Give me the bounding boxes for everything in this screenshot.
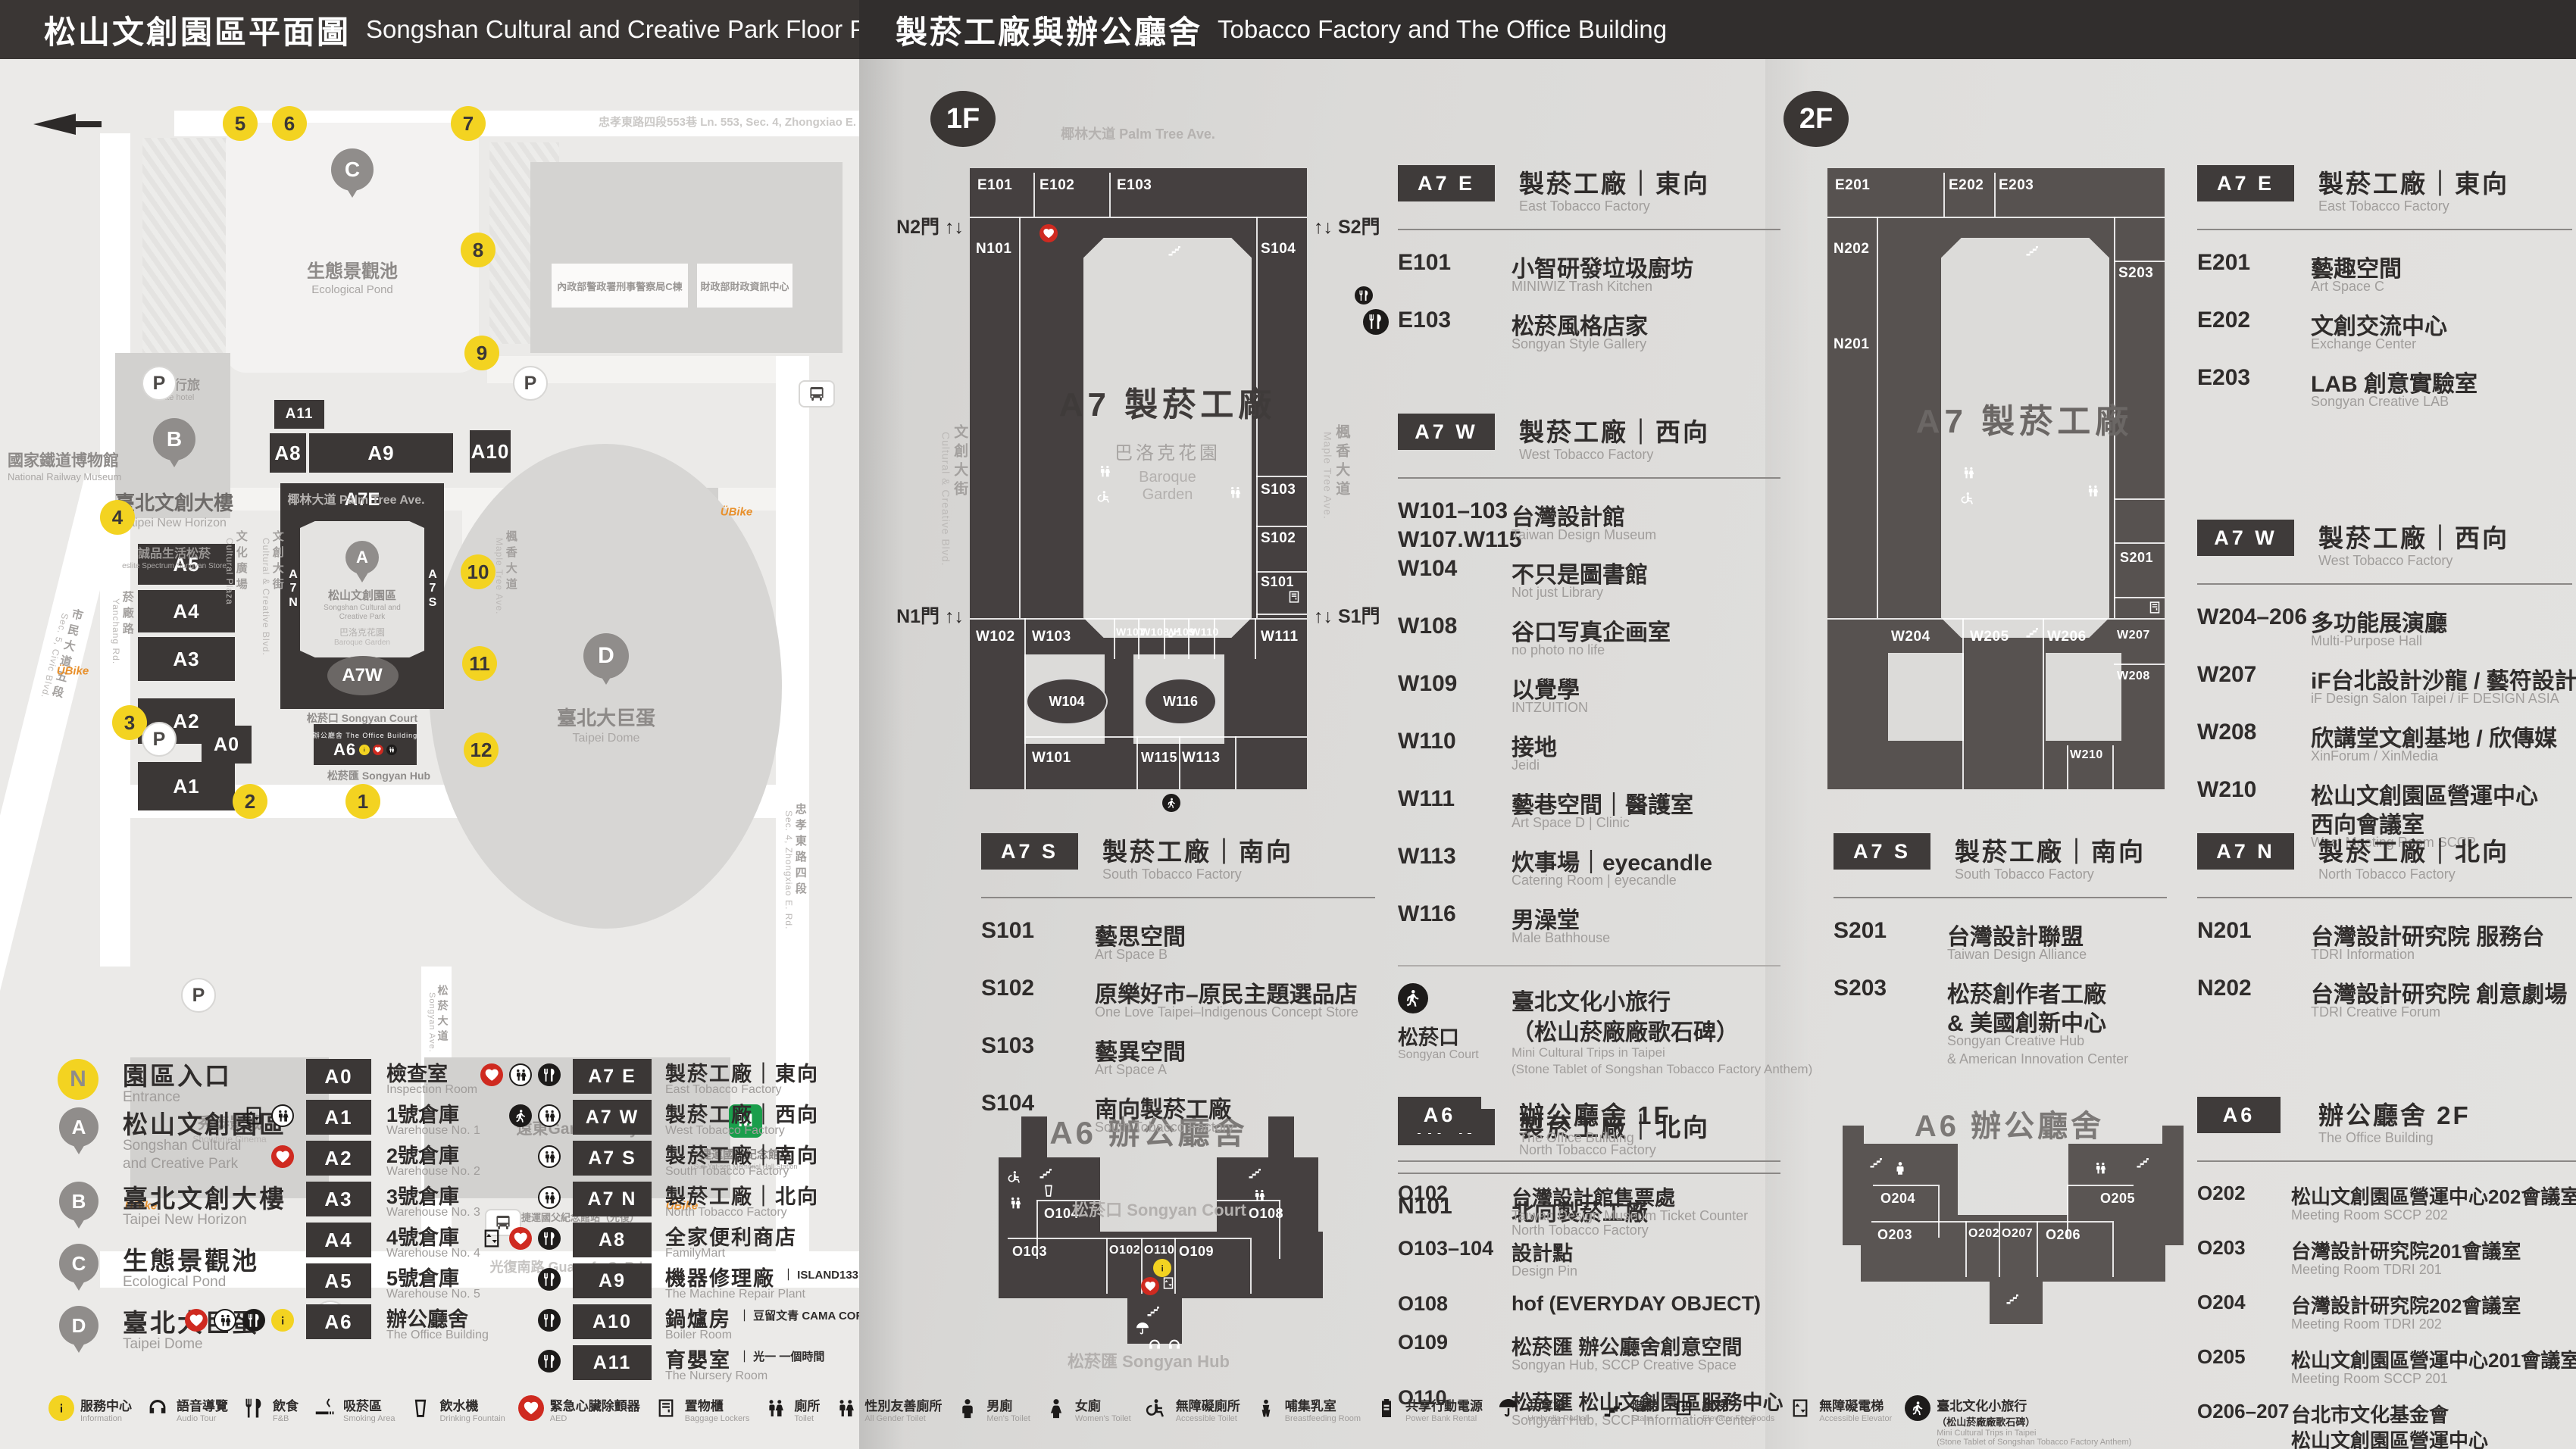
plan-gate-N2: N2門 ↑↓ [896, 212, 964, 239]
stairs-icon-glyph [1146, 1303, 1161, 1318]
area-label-zh: 內政部警政署刑事警察局C棟 [557, 279, 682, 293]
facility-en: Mini Cultural Trips in Taipei [1937, 1429, 2131, 1438]
plan-room-O110: O110 [1144, 1244, 1174, 1257]
legend-marker-A: A [59, 1107, 98, 1147]
section-title-en: West Tobacco Factory [2318, 553, 2453, 569]
elevb-icon [1787, 1395, 1813, 1421]
facility-zh: 共享傘 [1527, 1395, 1587, 1414]
stairs-icon [1600, 1395, 1626, 1421]
facility-zh: 臺北文化小旅行 [1937, 1395, 2131, 1414]
map-building-A0: A0 [202, 726, 252, 764]
map-entrance-12: 12 [464, 732, 499, 767]
plan-room-O205: O205 [2100, 1191, 2135, 1207]
facility-zh: 哺集乳室 [1285, 1395, 1361, 1414]
legend-en-A2: Warehouse No. 2 [386, 1165, 480, 1179]
fork-icon-glyph [542, 1354, 557, 1369]
listing-code-W113: W113 [1398, 844, 1456, 870]
park-map: 內政部警政署刑事警察局C棟財政部財政資訊中心臺北洲際酒店巨蛋國際中心秀泰影城Sh… [0, 59, 859, 1449]
icon-stairs [1167, 242, 1182, 258]
map-text-en: eslite Spectrum Songyan Store [122, 562, 227, 572]
icon-toiletc [538, 1145, 561, 1168]
map-text-生態景觀池: 生態景觀池Ecological Pond [307, 261, 398, 298]
plan-a6f2-line-4 [1965, 1221, 1967, 1277]
legend-badge-A7-E: A7 E [573, 1059, 652, 1094]
listing-code-W104: W104 [1398, 556, 1457, 582]
listing-name-zh2-O206–207: 松山文創園區營運中心 [2291, 1426, 2488, 1449]
court-label-en: Songyan Court [1398, 1048, 1479, 1062]
ubike-station-1: ÜBike [721, 506, 753, 519]
facility-en: Men's Toilet [986, 1414, 1030, 1423]
plan-street-label: 椰林大道 Palm Tree Ave. [1061, 126, 1215, 143]
facility-text: 飲水機Drinking Fountain [439, 1395, 505, 1423]
goods-icon-glyph [1672, 1397, 1695, 1419]
court-zh: 臺北文化小旅行 [1512, 983, 1671, 1016]
plan-text-line: 松菸口 Songyan Court [1072, 1200, 1246, 1221]
plan-f2-line-2 [1994, 173, 1996, 217]
toilet-icon-glyph [542, 1190, 557, 1205]
section-divider [2197, 583, 2572, 585]
listing-name-en-W116: Male Bathhouse [1512, 930, 1610, 946]
icon-tripc [1162, 794, 1180, 812]
facility-text: 語音導覽Audio Tour [177, 1395, 228, 1423]
toilet-icon-glyph [1097, 464, 1112, 479]
trip-icon-glyph [1402, 988, 1423, 1008]
plan-room-W104: W104 [1026, 678, 1108, 725]
cup-icon-glyph [409, 1397, 432, 1419]
facility-zh: 階梯 [1632, 1395, 1658, 1414]
facility-zh: 廁所 [794, 1395, 820, 1414]
facility-en: AED [550, 1414, 640, 1423]
map-text-臺北大巨蛋: 臺北大巨蛋Taipei Dome [557, 706, 655, 746]
info-icon-glyph [1156, 1262, 1168, 1274]
listing-name-en-S101: Art Space B [1095, 947, 1168, 963]
toilet-icon-glyph [2093, 1160, 2108, 1176]
plan-room-O109: O109 [1179, 1244, 1214, 1260]
plan-room-O108: O108 [1249, 1206, 1283, 1222]
battery-icon-glyph [1375, 1397, 1398, 1419]
aed-icon-glyph [374, 746, 382, 754]
map-text-line: 椰林大道 Palm Tree Ave. [287, 493, 424, 508]
section-divider [2197, 897, 2572, 898]
section-badge-A7-E: A7 E [1398, 165, 1495, 201]
plan-f2-line-5 [2114, 261, 2165, 262]
fork-icon [241, 1395, 267, 1421]
section-badge-A6: A6 [1398, 1097, 1481, 1133]
facility-accessible-elevator: 無障礙電梯Accessible Elevator [1787, 1395, 1892, 1423]
plan-room-O204: O204 [1880, 1191, 1915, 1207]
plan-room-S102: S102 [1261, 530, 1296, 547]
facility-text: 緊急心臟除顫器AED [550, 1395, 640, 1423]
section-title-en: The Office Building [2318, 1130, 2434, 1146]
listing-code-O206–207: O206–207 [2197, 1400, 2289, 1423]
map-area-fia-office: 財政部財政資訊中心 [697, 264, 792, 308]
plan-a6f1-mass-4 [1021, 1116, 1047, 1159]
icon-forkc [538, 1268, 561, 1291]
legend-badge-A7-S: A7 S [573, 1141, 652, 1176]
listing-code-S101: S101 [981, 918, 1034, 944]
icon-aed [1039, 224, 1058, 242]
icon-wheel [1097, 489, 1112, 504]
toilet-icon-glyph [513, 1067, 528, 1082]
aed-icon-glyph [1043, 227, 1055, 239]
woman-icon-glyph [1045, 1397, 1068, 1419]
listing-name-en-W110: Jeidi [1512, 757, 1540, 773]
toilet-icon-glyph [1252, 1188, 1267, 1203]
road-label-zh: 文化廣場 [234, 530, 247, 605]
trip-icon-glyph [513, 1108, 528, 1123]
icon-aed [480, 1063, 503, 1086]
toilet-icon [762, 1395, 788, 1421]
map-text-椰林大道: 椰林大道 Palm Tree Ave. [287, 493, 424, 508]
listing-code-W204–206: W204–206 [2197, 604, 2307, 630]
info-icon-glyph [275, 1313, 290, 1328]
aedg-icon [518, 1395, 544, 1421]
facility-zh: 男廁 [986, 1395, 1030, 1414]
listing-name-en-S201: Taiwan Design Alliance [1947, 947, 2087, 963]
icon-aed [271, 1145, 294, 1168]
listing-code-W110: W110 [1398, 729, 1456, 754]
facility-en: Drinking Fountain [439, 1414, 505, 1423]
icon-toilet [2093, 1160, 2108, 1176]
facility-zh: 緊急心臟除顫器 [550, 1395, 640, 1414]
facility-text: 廁所Toilet [794, 1395, 820, 1423]
plan-f1-line-15 [1214, 618, 1215, 659]
legend-badge-A9: A9 [573, 1263, 652, 1298]
listing-name-zh-O202: 松山文創園區營運中心202會議室 [2291, 1182, 2576, 1210]
umb-icon-glyph [1135, 1321, 1150, 1336]
plan-room-S104: S104 [1261, 241, 1296, 258]
plan-room-W110: W110 [1190, 626, 1219, 638]
toilet-icon-glyph [275, 1108, 290, 1123]
plan-room-E201: E201 [1835, 177, 1870, 194]
plan-f2-line-8 [2114, 597, 2165, 598]
icon-forkc [538, 1227, 561, 1250]
plan-room-S101: S101 [1261, 574, 1294, 590]
locker-icon-glyph [1286, 589, 1302, 604]
listing-name-en-W208: XinForum / XinMedia [2311, 748, 2438, 764]
road-label-zh: 菸廠路 [120, 591, 133, 664]
listing-name-en-O102: Taiwan Design Museum Ticket Counter [1512, 1208, 1748, 1224]
legend-zh-B: 臺北文創大樓 [123, 1179, 286, 1215]
map-pin-D: D [583, 633, 629, 679]
facility-mini-cultural-trips-in-taipei: 臺北文化小旅行（松山菸廠廠歌石碑）Mini Cultural Trips in … [1905, 1395, 2131, 1447]
legend-en-A7 W: West Tobacco Factory [665, 1124, 785, 1138]
plan-center-title: A7 製菸工廠 [1059, 377, 1276, 426]
toilet-icon-glyph [1008, 1195, 1023, 1210]
listing-name-en-S102: One Love Taipei–Indigenous Concept Store [1095, 1004, 1358, 1020]
facility-zh: 飲食 [273, 1395, 299, 1414]
section-divider [1398, 1160, 1780, 1162]
facility-power-bank-rental: 共享行動電源Power Bank Rental [1374, 1395, 1483, 1423]
floor-badge-2F: 2F [1784, 91, 1849, 147]
icon-info [359, 745, 370, 755]
icon-head [1167, 1338, 1182, 1353]
facility-en2: (Stone Tablet of Songshan Tobacco Factor… [1937, 1438, 2131, 1447]
plan-f1-line-17 [1024, 736, 1307, 738]
plan-room-E203: E203 [1999, 177, 2034, 194]
legend-badge-A7-W: A7 W [573, 1100, 652, 1135]
listing-code-E202: E202 [2197, 308, 2250, 333]
bus-stop-icon-0 [799, 380, 835, 408]
plan-room-O206: O206 [2046, 1227, 2080, 1243]
map-entrance-1: 1 [345, 784, 380, 819]
listing-name-en2-S203: & American Innovation Center [1947, 1051, 2128, 1067]
plan-f2-line-11 [2043, 618, 2044, 789]
listing-code-N202: N202 [2197, 976, 2252, 1001]
plan-room-E103: E103 [1117, 177, 1152, 194]
listing-code-O202: O202 [2197, 1182, 2246, 1205]
plan-side-文創大街: 文創大街Cultural & Creative Blvd. [939, 424, 967, 567]
legend-en-A7 E: East Tobacco Factory [665, 1083, 782, 1097]
road-label-en: Cultural Plaza [224, 538, 234, 605]
map-pin-B: B [153, 418, 195, 461]
map-building-A11: A11 [274, 400, 324, 429]
icon-elev [1161, 1276, 1176, 1291]
legend-en-A11: The Nursery Room [665, 1369, 767, 1383]
listing-name-zh-O102: 台灣設計館售票處 [1512, 1182, 1675, 1211]
listing-code-W116: W116 [1398, 901, 1456, 927]
facility-en: Information [80, 1414, 132, 1423]
trip-icon-glyph [1909, 1400, 1926, 1416]
legend-en2-A: and Creative Park [123, 1156, 238, 1173]
legend-en-A5: Warehouse No. 5 [386, 1288, 480, 1301]
stairs-icon-glyph [2024, 624, 2040, 639]
icon-stairs [1868, 1154, 1884, 1170]
facility-smoking-area: 吸菸區Smoking Area [311, 1395, 395, 1423]
listing-code-E101: E101 [1398, 250, 1451, 276]
legend-badge-A3: A3 [306, 1182, 371, 1216]
plan-text-松菸匯: 松菸匯 Songyan Hub [1068, 1351, 1230, 1372]
facility-text: 吸菸區Smoking Area [343, 1395, 395, 1423]
section-title-zh: 製菸工廠｜北向 [2318, 832, 2509, 868]
legend-marker-N: N [58, 1059, 98, 1100]
plan-room-W115: W115 [1141, 750, 1177, 766]
listing-name-en-W113: Catering Room | eyecandle [1512, 873, 1677, 888]
listing-name-en-S104: South Tobacco Factory [1095, 1120, 1234, 1135]
plan-room-E101: E101 [977, 177, 1012, 194]
legend-en-A9: The Machine Repair Plant [665, 1288, 805, 1301]
icon-elev [480, 1227, 503, 1250]
toilet-icon-glyph [388, 746, 395, 754]
map-text-en: Taipei Dome [557, 731, 655, 746]
plan-f2-court-2 [2046, 653, 2121, 741]
icon-wheel [1961, 491, 1976, 506]
listing-name-zh-O109: 松菸匯 辦公廳舍創意空間 [1512, 1331, 1743, 1360]
a7-garden-en: Baroque Garden [277, 639, 447, 648]
facility-text: 共享傘Umbrella Rental [1527, 1395, 1587, 1423]
icon-elev [242, 1104, 265, 1127]
road-label-en: Songyan Ave. [427, 992, 436, 1053]
plan-room-O102: O102 [1109, 1244, 1140, 1257]
map-road-label-忠孝東路四段: 忠孝東路四段Sec. 4, Zhongxiao E. Rd. [783, 803, 806, 929]
section-badge-A7-W: A7 W [1398, 414, 1495, 450]
plan-f2-line-3 [1877, 217, 1878, 618]
listing-name-en-E203: Songyan Creative LAB [2311, 394, 2449, 410]
facility-all-gender-toilet: 性別友善廁所All Gender Toilet [833, 1395, 942, 1423]
facility-en: Breastfeeding Room [1285, 1414, 1361, 1423]
facility-baggage-lockers: 置物櫃Baggage Lockers [653, 1395, 750, 1423]
plan-room-W113: W113 [1182, 750, 1221, 767]
plan-f1-line-16 [1255, 618, 1256, 659]
facility-text: 共享行動電源Power Bank Rental [1405, 1395, 1483, 1423]
legend-zh-N: 園區入口 [123, 1056, 232, 1092]
side-zh: 文創大街 [951, 424, 967, 567]
map-entrance-6: 6 [272, 106, 307, 141]
aed-icon-glyph [189, 1313, 204, 1328]
plan-f2-line-7 [2114, 542, 2165, 544]
baby-icon-glyph [1255, 1397, 1277, 1419]
facility-text: 置物櫃Baggage Lockers [685, 1395, 750, 1423]
facility-zh: 飲水機 [439, 1395, 505, 1414]
plan-a6f2-line-1 [1938, 1185, 1940, 1238]
listing-code-E201: E201 [2197, 250, 2250, 276]
map-a6-row: A6 [333, 740, 397, 760]
plan-a6f1-line-4 [1106, 1238, 1108, 1294]
facility-en: Accessible Toilet [1176, 1414, 1240, 1423]
a7-garden-zh: 巴洛克花園 [277, 627, 447, 639]
plan-a6f2-line-2 [2068, 1185, 2134, 1186]
plan-title-a6f2: A6 辦公廳舍 [1915, 1101, 2104, 1145]
plan-a6f1-line-7 [1250, 1238, 1252, 1294]
facility-text: 性別友善廁所All Gender Toilet [864, 1395, 942, 1423]
icon-info [271, 1309, 294, 1332]
plan-room-W204: W204 [1891, 629, 1930, 645]
listing-name-en-W207: iF Design Salon Taipei / iF DESIGN ASIA [2311, 691, 2559, 707]
icon-aed [1141, 1277, 1159, 1295]
map-building-A8: A8 [270, 433, 306, 473]
map-text-誠品生活松菸: 誠品生活松菸eslite Spectrum Songyan Store [122, 547, 227, 572]
icon-umb [1135, 1321, 1150, 1336]
listing-code-O204: O204 [2197, 1291, 2246, 1314]
page-title-zh: 松山文創園區平面圖 [44, 7, 351, 53]
plan-room-W108: W108 [1140, 626, 1170, 638]
list-divider [1398, 965, 1780, 967]
plan-room-W208: W208 [2117, 670, 2150, 683]
wheel-icon-glyph [1008, 1170, 1023, 1185]
icon-stairs [1167, 624, 1182, 639]
legend-en-A7 N: North Tobacco Factory [665, 1206, 787, 1219]
facility-text: 飲食F&B [273, 1395, 299, 1423]
facility-drinking-fountain: 飲水機Drinking Fountain [408, 1395, 505, 1423]
a7-park-en2: Creative Park [277, 613, 447, 623]
listing-name-en-O202: Meeting Room SCCP 202 [2291, 1207, 2448, 1223]
map-text-松菸口: 松菸口 Songyan Court [307, 712, 417, 726]
map-area-cib-block [530, 162, 843, 353]
plan-f2-center: A7 製菸工廠 [1916, 394, 2133, 442]
map-building-A9: A9 [309, 433, 453, 473]
listing-name-en-W104: Not just Library [1512, 585, 1603, 601]
fork-icon-glyph [542, 1272, 557, 1287]
toilet-icon-glyph [1227, 485, 1243, 500]
facility-text: 階梯Stairs [1632, 1395, 1658, 1423]
plan-a6f2-line-7 [2112, 1221, 2114, 1277]
fork-icon-glyph [1358, 289, 1370, 301]
plan-f1-line-11 [1114, 618, 1115, 659]
parking-icon-0: P [142, 366, 177, 401]
listing-name-en-O203: Meeting Room TDRI 201 [2291, 1262, 2442, 1278]
legend-badge-A10: A10 [573, 1304, 652, 1339]
legend-badge-A2: A2 [306, 1141, 371, 1176]
section-badge-A7-N: A7 N [2197, 833, 2294, 870]
wheel-icon-glyph [1146, 1397, 1168, 1419]
icon-wheel [1008, 1170, 1023, 1185]
legend-badge-A6: A6 [306, 1304, 371, 1339]
road-label-en: Cultural & Creative Blvd. [261, 538, 270, 656]
plan-f2-line-1 [1943, 173, 1945, 217]
toilet-icon-glyph [542, 1108, 557, 1123]
fold-shadow [859, 59, 905, 1449]
facility-en: F&B [273, 1414, 299, 1423]
listing-code-O103–104: O103–104 [1398, 1237, 1493, 1260]
map-text-松菸匯: 松菸匯 Songyan Hub [327, 770, 430, 783]
map-building-A6: 辦公廳舍 The Office BuildingA6 [314, 724, 417, 765]
trip-icon [1905, 1395, 1930, 1421]
facility-en: Stairs [1632, 1414, 1658, 1423]
icon-stairs [1038, 1165, 1053, 1180]
plan-a6f2-line-0 [1873, 1185, 1938, 1186]
locker-icon-glyph [2147, 600, 2162, 615]
plan-room-W206: W206 [2047, 629, 2087, 645]
plan-room-W205: W205 [1970, 629, 2009, 645]
icon-stairs [2005, 1291, 2020, 1306]
legend-en-A1: Warehouse No. 1 [386, 1124, 480, 1138]
section-title-zh: 辦公廳舍 2F [2318, 1095, 2471, 1132]
section-divider [2197, 229, 2572, 230]
man-icon-glyph [1893, 1160, 1908, 1176]
plan-f1-line-7 [1256, 571, 1307, 573]
plan-room-N201: N201 [1834, 336, 1869, 353]
stairs-icon-glyph [2024, 242, 2040, 258]
plan-f1-line-1 [1033, 173, 1035, 217]
section-title-zh: 製菸工廠｜東向 [1519, 164, 1710, 200]
stairs-icon-glyph [1868, 1154, 1884, 1170]
listing-name-en-N202: TDRI Creative Forum [2311, 1004, 2440, 1020]
smoke-icon-glyph [313, 1397, 336, 1419]
icon-man [1893, 1160, 1908, 1176]
section-divider [1398, 1173, 1780, 1174]
plan-room-N101: N101 [976, 241, 1011, 258]
head-icon-glyph [146, 1397, 169, 1419]
map-building-A4: A4 [138, 590, 235, 632]
map-text-zh: 生態景觀池 [307, 261, 398, 283]
poster: 松山文創園區平面圖 Songshan Cultural and Creative… [0, 0, 2576, 1449]
listing-name-zh-O203: 台灣設計研究院201會議室 [2291, 1236, 2521, 1264]
floor-plan-panel: 1F椰林大道 Palm Tree Ave.W104W116E101E102E10… [859, 59, 2576, 1449]
legend-en-C: Ecological Pond [123, 1274, 226, 1291]
listing-name-en-N201: TDRI Information [2311, 947, 2415, 963]
side-en: Maple Tree Ave. [1321, 432, 1333, 520]
toilet-icon-glyph [217, 1313, 233, 1328]
facility-women-s-toilet: 女廁Women's Toilet [1043, 1395, 1131, 1423]
facility-text: 服務中心Information [80, 1395, 132, 1423]
listing-name-en-O103–104: Design Pin [1512, 1263, 1577, 1279]
map-entrance-10: 10 [461, 554, 496, 589]
cup-icon-glyph [1041, 1183, 1056, 1198]
icon-forkc [538, 1309, 561, 1332]
facility-zh: 置物櫃 [685, 1395, 750, 1414]
umb-icon [1496, 1395, 1521, 1421]
map-road-label-文創大街: 文創大街Cultural & Creative Blvd. [261, 530, 283, 656]
legend-en-A10: Boiler Room [665, 1329, 732, 1342]
header-left: 松山文創園區平面圖 Songshan Cultural and Creative… [0, 0, 859, 59]
head-icon [145, 1395, 170, 1421]
plan-f1-line-20 [1235, 736, 1236, 789]
legend-badge-A5: A5 [306, 1263, 371, 1298]
map-building-A1: A1 [138, 762, 235, 810]
fork-icon-glyph [246, 1313, 261, 1328]
icon-stairs [2135, 1154, 2150, 1170]
plan-room-N202: N202 [1834, 241, 1869, 258]
